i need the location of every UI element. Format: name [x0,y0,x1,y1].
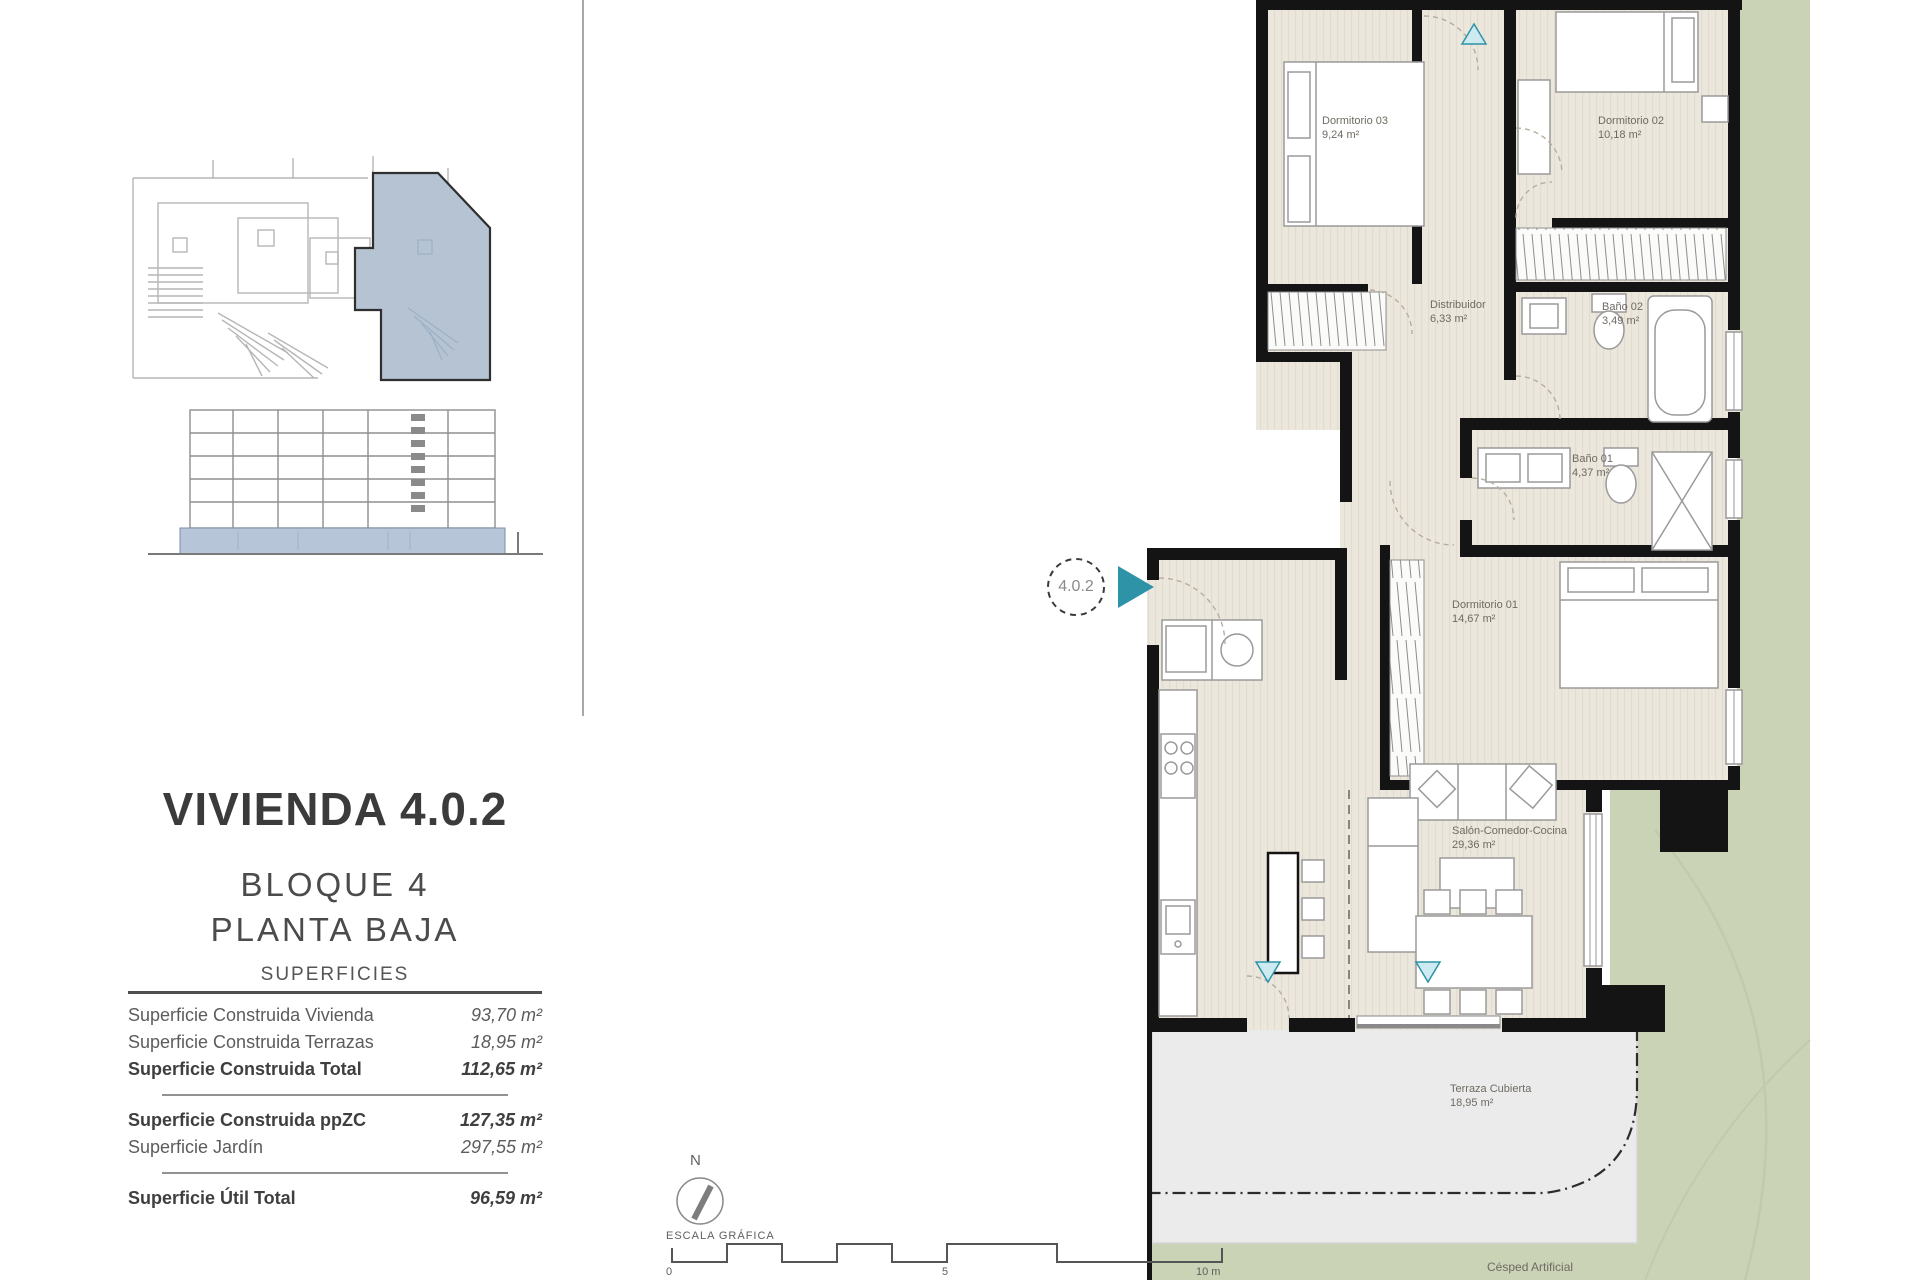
north-label: N [690,1152,701,1169]
floor-plan-sheet: VIVIENDA 4.0.2 BLOQUE 4 PLANTA BAJA SUPE… [0,0,1920,1280]
kitchen-appliances [1162,620,1262,680]
kitchen-island [1268,853,1324,973]
room-label-bano02: Baño 02 3,49 m² [1602,300,1643,328]
garden-label: Césped Artificial [1487,1260,1573,1274]
room-label-dormitorio02: Dormitorio 02 10,18 m² [1598,114,1664,142]
room-area: 18,95 m² [1450,1096,1531,1110]
scale-label: ESCALA GRÁFICA [666,1230,775,1242]
dining-set [1416,890,1532,1014]
kitchen-counter [1159,690,1197,1016]
unit-marker-label: 4.0.2 [1048,578,1104,596]
scale-tick-5: 5 [942,1266,948,1278]
room-name: Terraza Cubierta [1450,1082,1531,1096]
room-name: Baño 01 [1572,452,1613,466]
room-area: 9,24 m² [1322,128,1388,142]
room-name: Dormitorio 03 [1322,114,1388,128]
room-area: 14,67 m² [1452,612,1518,626]
room-label-distribuidor: Distribuidor 6,33 m² [1430,298,1486,326]
floor-plan-drawing [0,0,1920,1280]
bed-dorm03 [1284,62,1424,226]
room-name: Distribuidor [1430,298,1486,312]
room-label-bano01: Baño 01 4,37 m² [1572,452,1613,480]
room-label-terraza: Terraza Cubierta 18,95 m² [1450,1082,1531,1110]
room-name: Baño 02 [1602,300,1643,314]
scale-tick-10m: 10 m [1196,1266,1220,1278]
scale-bar [672,1244,1222,1262]
room-label-dormitorio03: Dormitorio 03 9,24 m² [1322,114,1388,142]
room-area: 3,49 m² [1602,314,1643,328]
terrace-area [1152,1028,1637,1243]
room-area: 6,33 m² [1430,312,1486,326]
north-compass-icon [677,1178,723,1224]
room-area: 29,36 m² [1452,838,1567,852]
scale-tick-0: 0 [666,1266,672,1278]
bed-dorm01 [1560,562,1718,688]
garden-label-text: Césped Artificial [1487,1260,1573,1274]
room-name: Salón-Comedor-Cocina [1452,824,1567,838]
room-label-salon: Salón-Comedor-Cocina 29,36 m² [1452,824,1567,852]
room-label-dormitorio01: Dormitorio 01 14,67 m² [1452,598,1518,626]
room-name: Dormitorio 01 [1452,598,1518,612]
room-area: 10,18 m² [1598,128,1664,142]
room-area: 4,37 m² [1572,466,1613,480]
room-name: Dormitorio 02 [1598,114,1664,128]
